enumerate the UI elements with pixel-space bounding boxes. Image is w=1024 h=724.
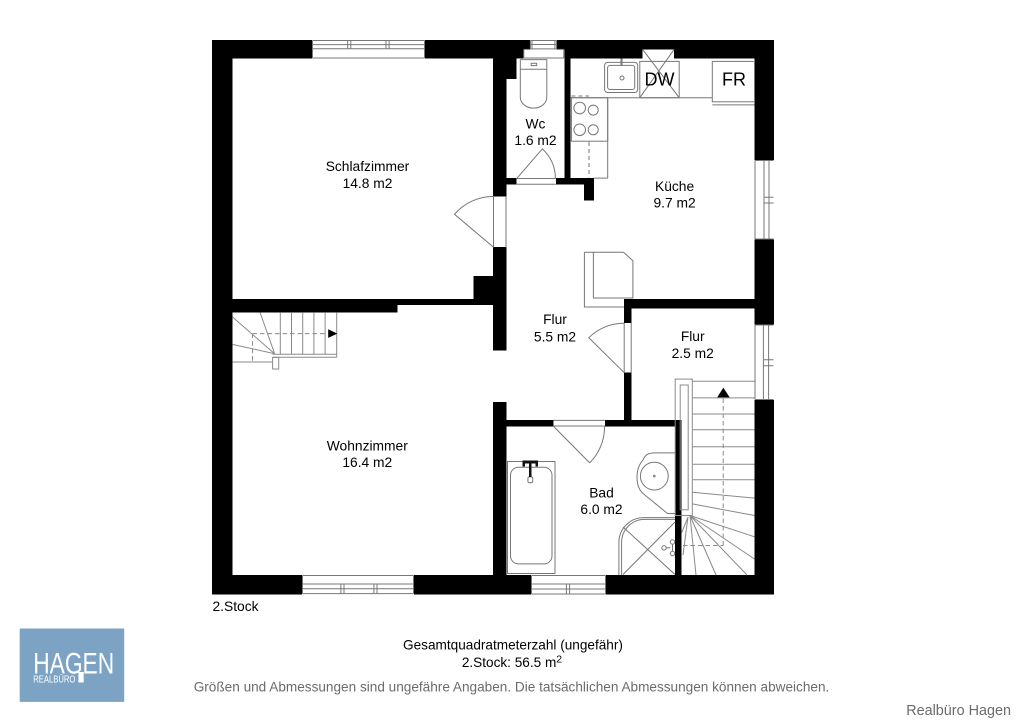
svg-text:2.Stock: 2.Stock (213, 599, 259, 614)
svg-text:Gesamtquadratmeterzahl (ungefä: Gesamtquadratmeterzahl (ungefähr) (403, 637, 623, 652)
svg-text:14.8 m2: 14.8 m2 (343, 176, 393, 191)
svg-text:2.Stock: 56.5 m2: 2.Stock: 56.5 m2 (462, 654, 562, 671)
svg-text:16.4 m2: 16.4 m2 (342, 455, 392, 470)
svg-text:Flur: Flur (543, 312, 567, 327)
svg-text:Wohnzimmer: Wohnzimmer (327, 439, 408, 454)
svg-text:Schlafzimmer: Schlafzimmer (326, 159, 410, 174)
svg-text:5.5 m2: 5.5 m2 (534, 329, 576, 344)
svg-text:FR: FR (722, 70, 746, 90)
svg-text:Realbüro Hagen: Realbüro Hagen (906, 703, 1011, 719)
svg-text:6.0 m2: 6.0 m2 (580, 502, 622, 517)
svg-text:Wc: Wc (526, 116, 546, 131)
svg-text:REALBÜRO: REALBÜRO (33, 674, 75, 686)
svg-text:9.7 m2: 9.7 m2 (654, 196, 696, 211)
svg-text:Flur: Flur (681, 329, 705, 344)
svg-text:Küche: Küche (655, 179, 694, 194)
svg-text:1.6 m2: 1.6 m2 (514, 133, 556, 148)
svg-text:Bad: Bad (589, 486, 614, 501)
svg-text:DW: DW (645, 70, 675, 90)
svg-text:2.5 m2: 2.5 m2 (672, 346, 714, 361)
svg-text:Größen und Abmessungen sind un: Größen und Abmessungen sind ungefähre An… (194, 680, 830, 695)
